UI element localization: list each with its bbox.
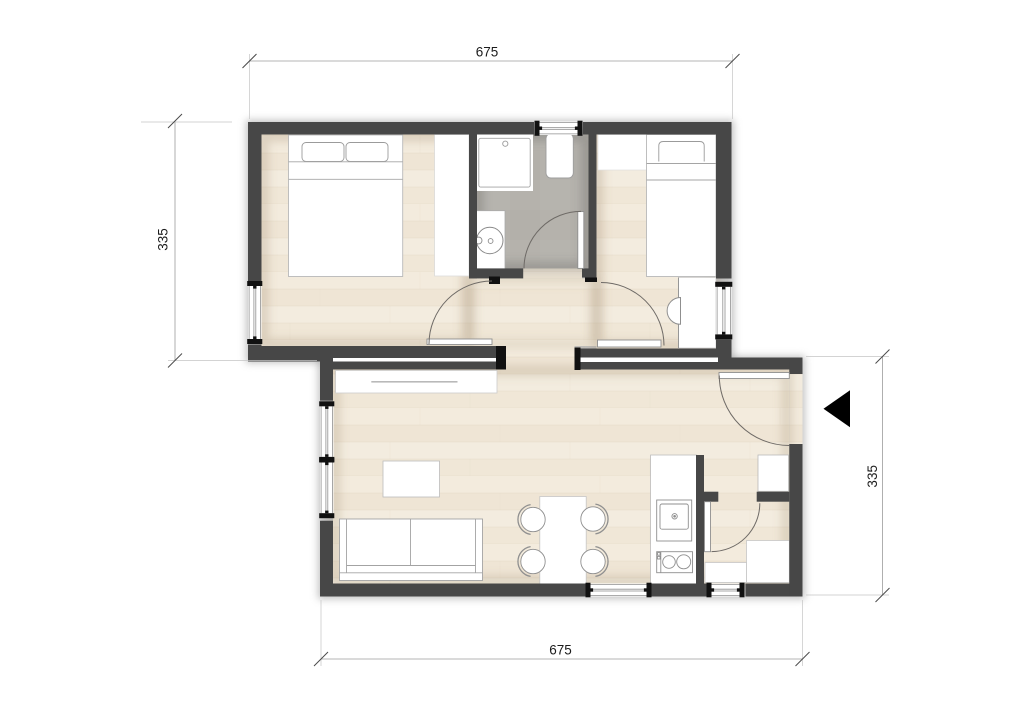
svg-text:335: 335	[865, 465, 880, 488]
svg-text:335: 335	[156, 228, 171, 251]
svg-text:675: 675	[476, 45, 499, 60]
svg-text:675: 675	[549, 643, 572, 658]
